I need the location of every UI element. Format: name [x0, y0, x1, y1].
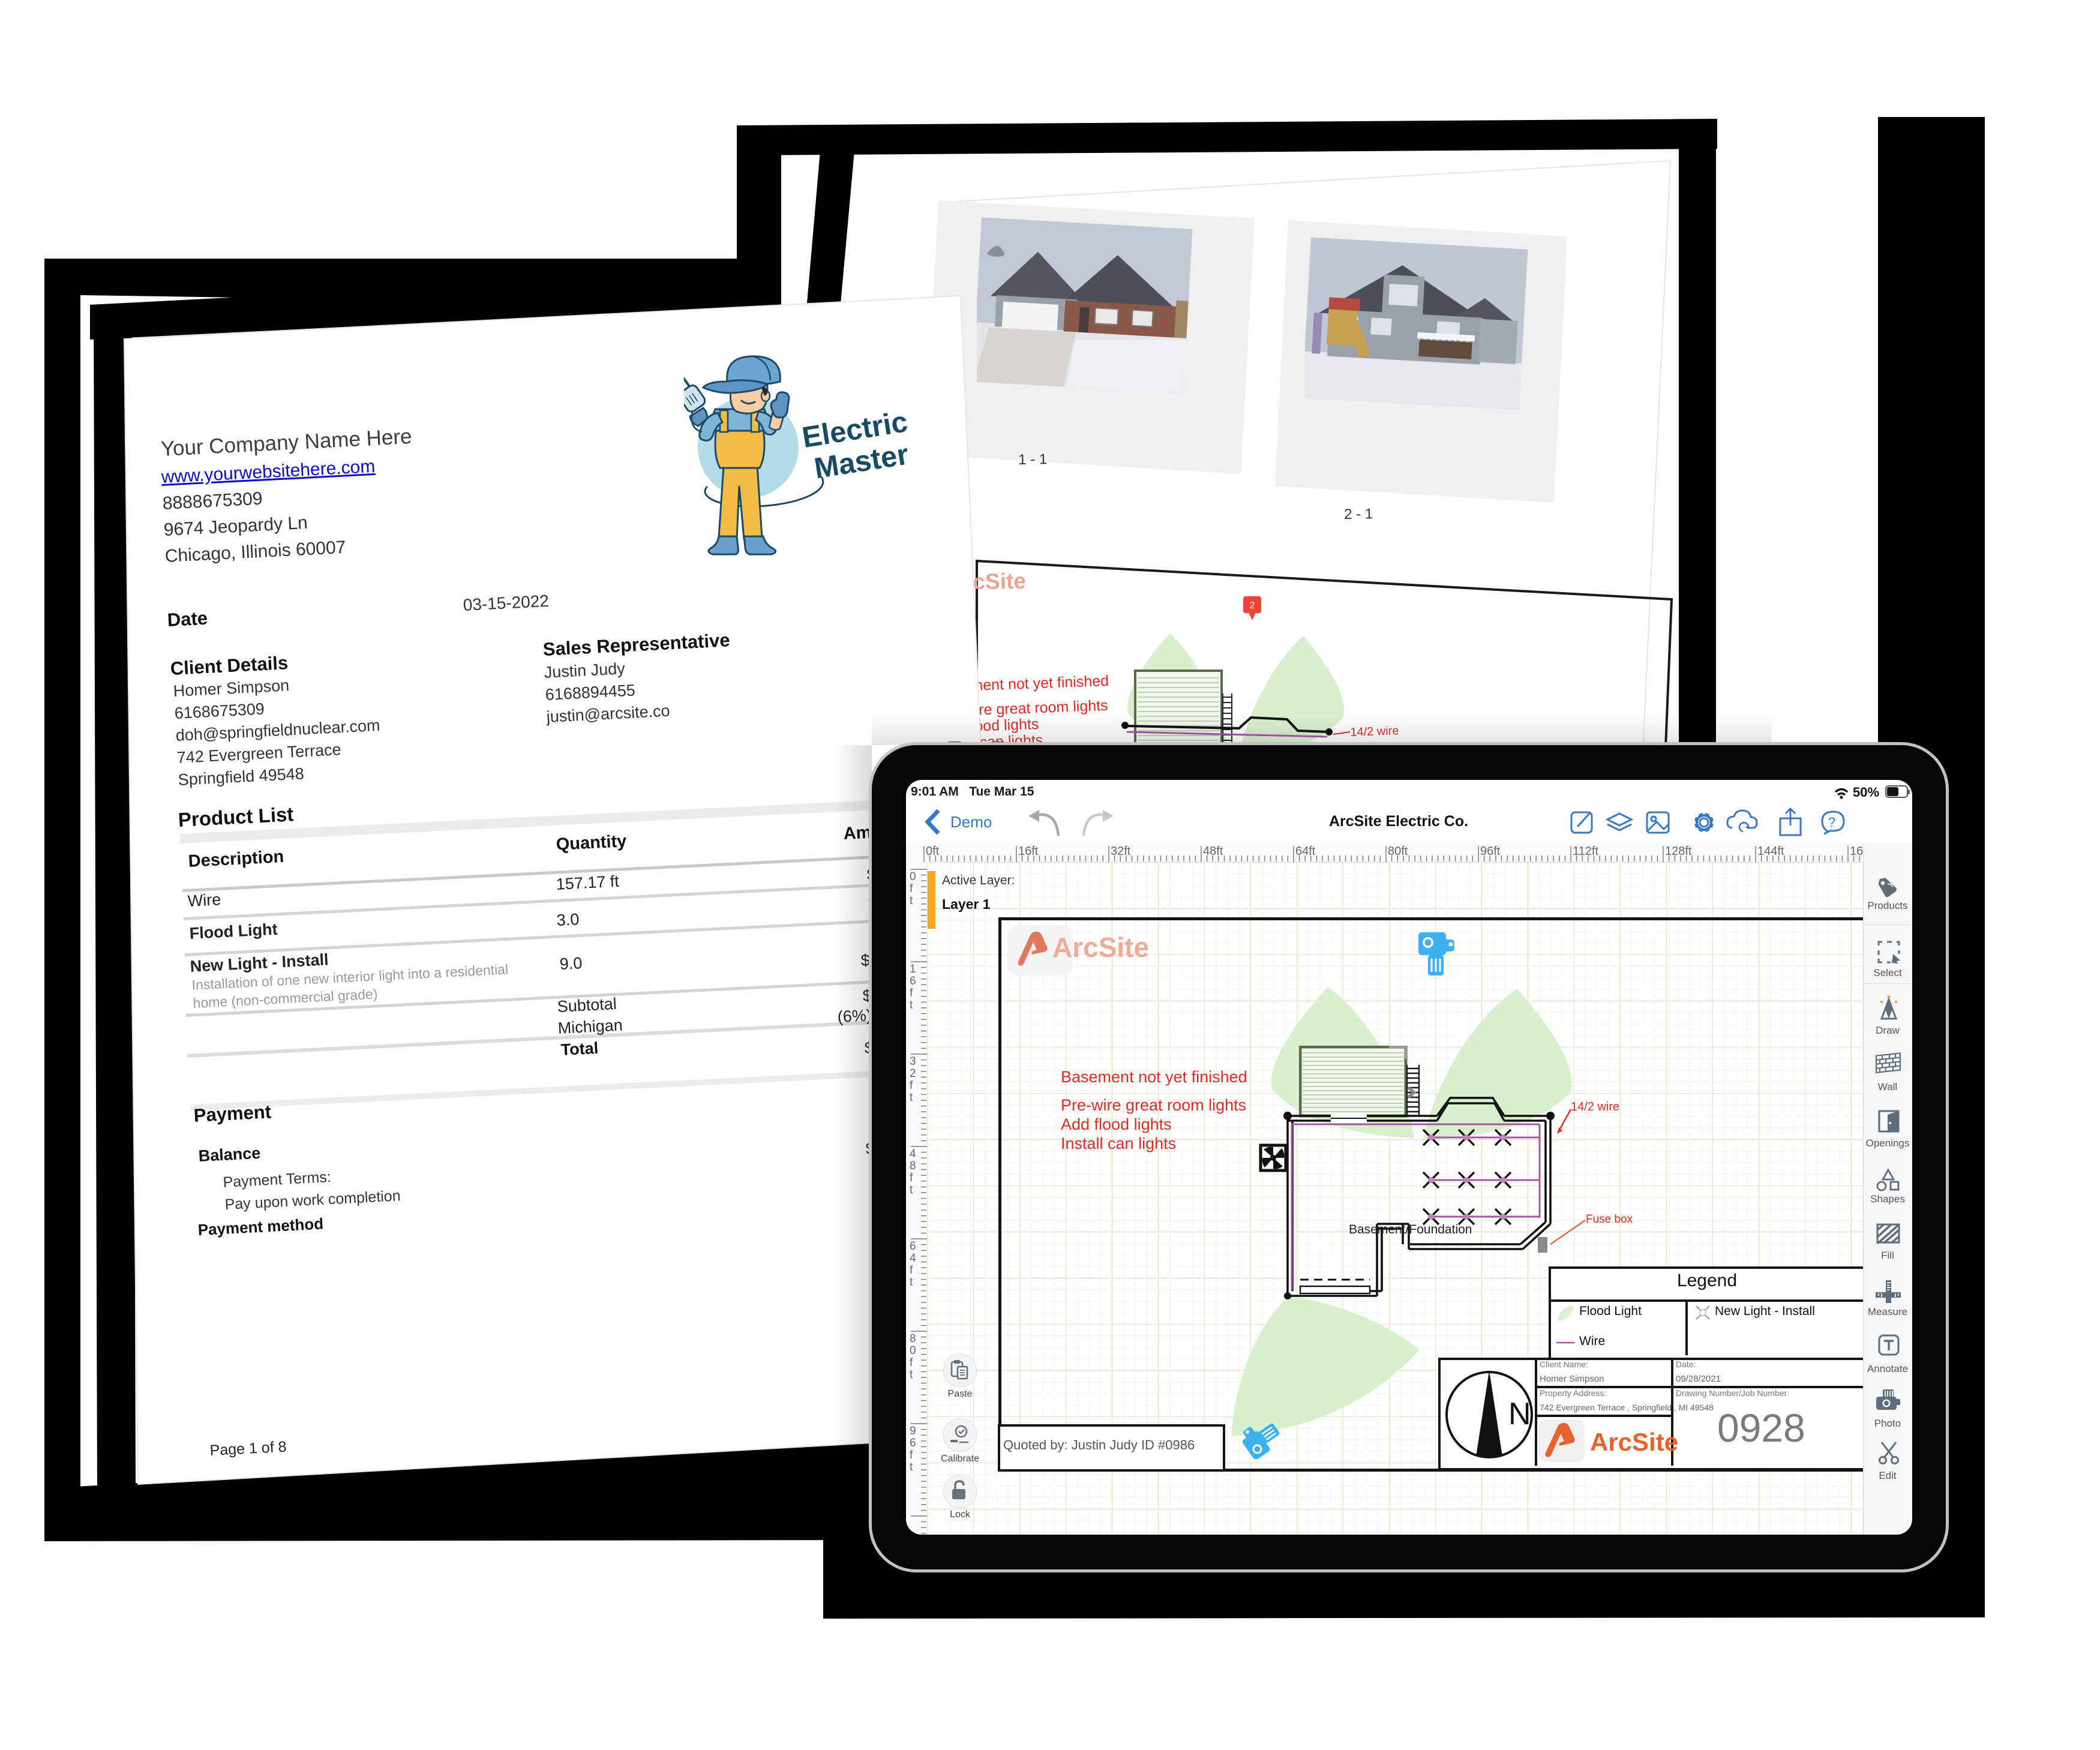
- svg-text:N: N: [1508, 1397, 1531, 1431]
